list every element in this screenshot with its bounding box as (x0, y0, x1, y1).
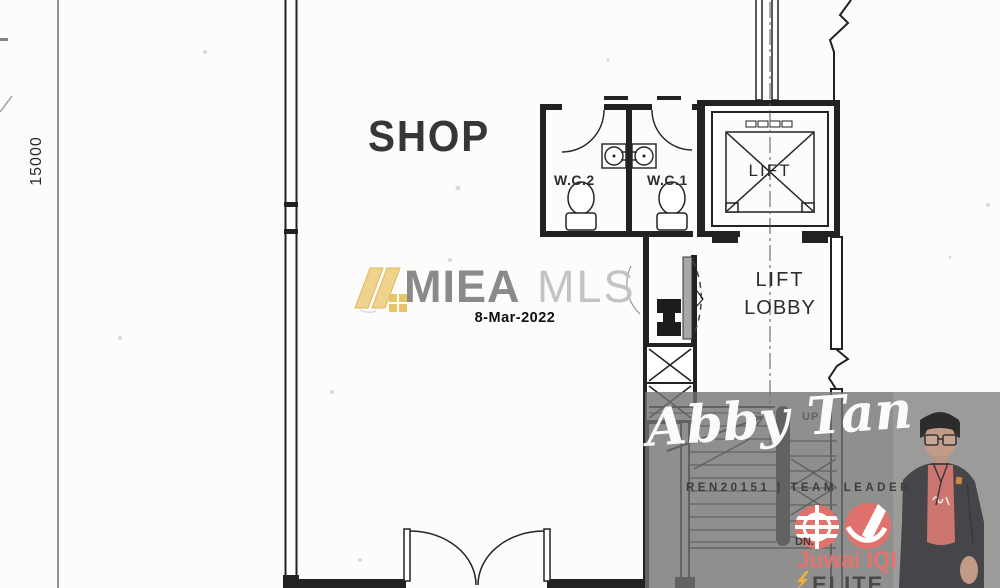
room-label-shop: SHOP (368, 112, 490, 162)
riser-symbol (657, 299, 681, 336)
juwai-iqi-wordmark: Juwai IQI (797, 547, 897, 575)
shopfront-wall (283, 0, 299, 588)
door-swing-dashed-arc (693, 261, 701, 334)
shop-bottom-wall (296, 579, 644, 588)
miea-logo-icon (355, 268, 407, 312)
room-label-lift-lobby-line2: LOBBY (725, 297, 835, 320)
sink-symbols (602, 144, 656, 168)
room-label-lift: LIFT (720, 161, 820, 181)
mls-wordmark: MLS (537, 261, 636, 313)
elite-wordmark: ELITE (812, 572, 884, 588)
room-label-wc2: W.C.2 (554, 172, 595, 188)
watermark-date: 8-Mar-2022 (450, 310, 580, 326)
door-swing-arrow (697, 291, 703, 306)
room-label-lift-lobby-line1: LIFT (730, 269, 830, 292)
riser-door-leaf (683, 257, 692, 339)
edge-mark (0, 38, 8, 41)
wc-door-arcs (562, 110, 692, 152)
agent-credentials: REN20151 | TEAM LEADER (686, 482, 912, 494)
dimension-tick (0, 96, 12, 112)
wall-break-symbol (830, 0, 851, 100)
room-label-wc1: W.C.1 (647, 172, 688, 188)
toilet-symbols (566, 182, 687, 230)
floorplan-screenshot: 15000 SHOP W.C.2 W.C.1 LIFT LIFT LOBBY U… (0, 0, 1000, 588)
upper-wall (756, 0, 778, 100)
lift-door-dashes (746, 121, 792, 127)
miea-wordmark: MIEA (404, 261, 521, 313)
double-door-symbol (404, 529, 550, 585)
dimension-label: 15000 (28, 106, 46, 216)
wc-block-walls (540, 96, 705, 237)
